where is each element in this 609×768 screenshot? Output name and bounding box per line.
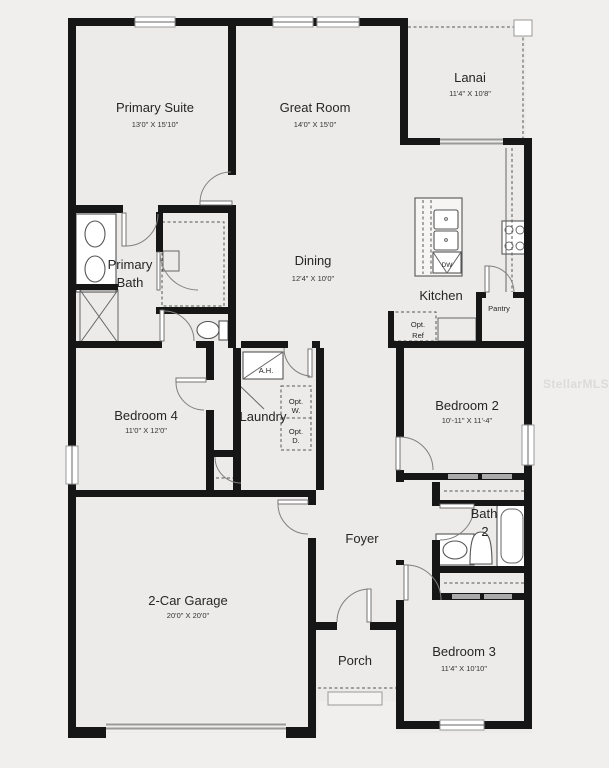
room-label-porch: Porch — [338, 653, 372, 668]
sliding-door — [440, 137, 503, 146]
room-label-bath2-2: 2 — [481, 524, 488, 539]
closet-slider — [452, 594, 480, 599]
opt-dryer-label-2: D. — [292, 436, 300, 445]
room-label-dining: Dining — [295, 253, 332, 268]
room-dims-bedroom3: 11'4" X 10'10" — [441, 664, 487, 673]
closet-slider — [482, 474, 512, 479]
opt-washer-label-2: W. — [292, 406, 301, 415]
room-label-bedroom2: Bedroom 2 — [435, 398, 499, 413]
room-label-bedroom4: Bedroom 4 — [114, 408, 178, 423]
room-label-kitchen: Kitchen — [419, 288, 462, 303]
room-dims-lanai: 11'4" X 10'8" — [449, 89, 491, 98]
room-dims-garage: 20'0" X 20'0" — [167, 611, 210, 620]
opt-washer-label-1: Opt. — [289, 397, 303, 406]
room-label-lanai: Lanai — [454, 70, 486, 85]
toilet-icon — [197, 322, 219, 339]
garage-door — [106, 722, 286, 732]
room-label-great-room: Great Room — [280, 100, 351, 115]
kitchen-sink-icon — [434, 231, 458, 250]
sink-icon — [85, 221, 105, 247]
stellar-mls-watermark: StellarMLS — [543, 377, 609, 391]
opt-fridge-label-2: Ref — [412, 331, 425, 340]
room-label-laundry: Laundry — [240, 409, 287, 424]
opt-fridge-label-1: Opt. — [411, 320, 425, 329]
kitchen-sink-icon — [434, 210, 458, 229]
sink-icon — [443, 541, 467, 559]
closet-slider — [484, 594, 512, 599]
floor-plan-page: Primary Suite 13'0" X 15'10" Great Room … — [0, 0, 609, 768]
lanai-corner-post — [514, 20, 532, 36]
room-label-primary-suite: Primary Suite — [116, 100, 194, 115]
window — [66, 446, 78, 484]
bathtub-icon — [497, 505, 527, 567]
floor-plan: Primary Suite 13'0" X 15'10" Great Room … — [0, 0, 609, 768]
window — [135, 17, 175, 27]
room-label-primary-bath-2: Bath — [117, 275, 144, 290]
window — [273, 17, 313, 27]
room-label-pantry: Pantry — [488, 304, 510, 313]
window — [440, 720, 484, 730]
porch-step — [328, 692, 382, 705]
opt-dryer-label-1: Opt. — [289, 427, 303, 436]
dishwasher-label: DW — [442, 262, 454, 269]
room-label-foyer: Foyer — [345, 531, 379, 546]
air-handler-label: A.H. — [259, 366, 274, 375]
room-dims-great-room: 14'0" X 15'0" — [294, 120, 337, 129]
sink-icon — [85, 256, 105, 282]
room-label-bath2-1: Bath — [471, 506, 498, 521]
room-label-primary-bath-1: Primary — [108, 257, 153, 272]
room-dims-dining: 12'4" X 10'0" — [292, 274, 335, 283]
room-label-garage: 2-Car Garage — [148, 593, 227, 608]
room-label-bedroom3: Bedroom 3 — [432, 644, 496, 659]
window — [317, 17, 359, 27]
toilet-icon — [219, 321, 228, 340]
room-dims-bedroom4: 11'0" X 12'0" — [125, 426, 167, 435]
room-dims-bedroom2: 10'-11" X 11'-4" — [442, 416, 493, 425]
room-dims-primary-suite: 13'0" X 15'10" — [132, 120, 179, 129]
closet-slider — [448, 474, 478, 479]
window — [522, 425, 534, 465]
